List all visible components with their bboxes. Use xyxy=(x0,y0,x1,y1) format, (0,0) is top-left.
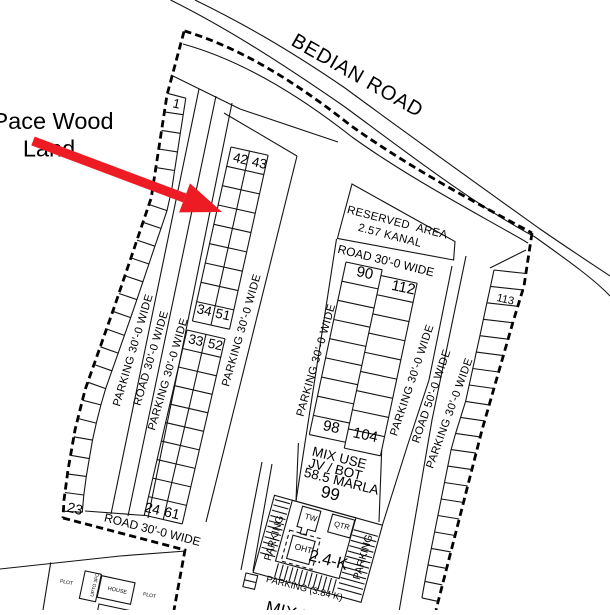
svg-text:2.4-K: 2.4-K xyxy=(307,547,350,574)
svg-text:HOUSE: HOUSE xyxy=(107,586,128,596)
svg-text:99: 99 xyxy=(319,482,342,505)
svg-text:51: 51 xyxy=(214,306,232,324)
svg-text:33: 33 xyxy=(187,331,205,349)
svg-text:QTR: QTR xyxy=(333,519,351,532)
svg-text:98: 98 xyxy=(321,417,341,437)
svg-text:112: 112 xyxy=(390,277,417,299)
svg-text:PLOT: PLOT xyxy=(59,578,73,587)
svg-text:PLOT: PLOT xyxy=(142,591,156,600)
svg-text:104: 104 xyxy=(351,424,379,446)
svg-text:113: 113 xyxy=(495,292,515,308)
svg-text:TW: TW xyxy=(304,512,319,524)
svg-text:1: 1 xyxy=(171,95,181,111)
svg-text:PARKING: PARKING xyxy=(262,514,286,562)
svg-text:BEDIAN ROAD: BEDIAN ROAD xyxy=(288,30,427,122)
svg-text:34: 34 xyxy=(195,301,213,319)
svg-text:42: 42 xyxy=(232,150,250,168)
svg-text:90: 90 xyxy=(355,263,375,283)
svg-text:43: 43 xyxy=(250,154,268,172)
svg-text:23: 23 xyxy=(66,499,85,518)
svg-text:PARKING 30'-0 WIDE: PARKING 30'-0 WIDE xyxy=(220,273,264,388)
svg-text:Pace Wood: Pace Wood xyxy=(0,108,114,134)
